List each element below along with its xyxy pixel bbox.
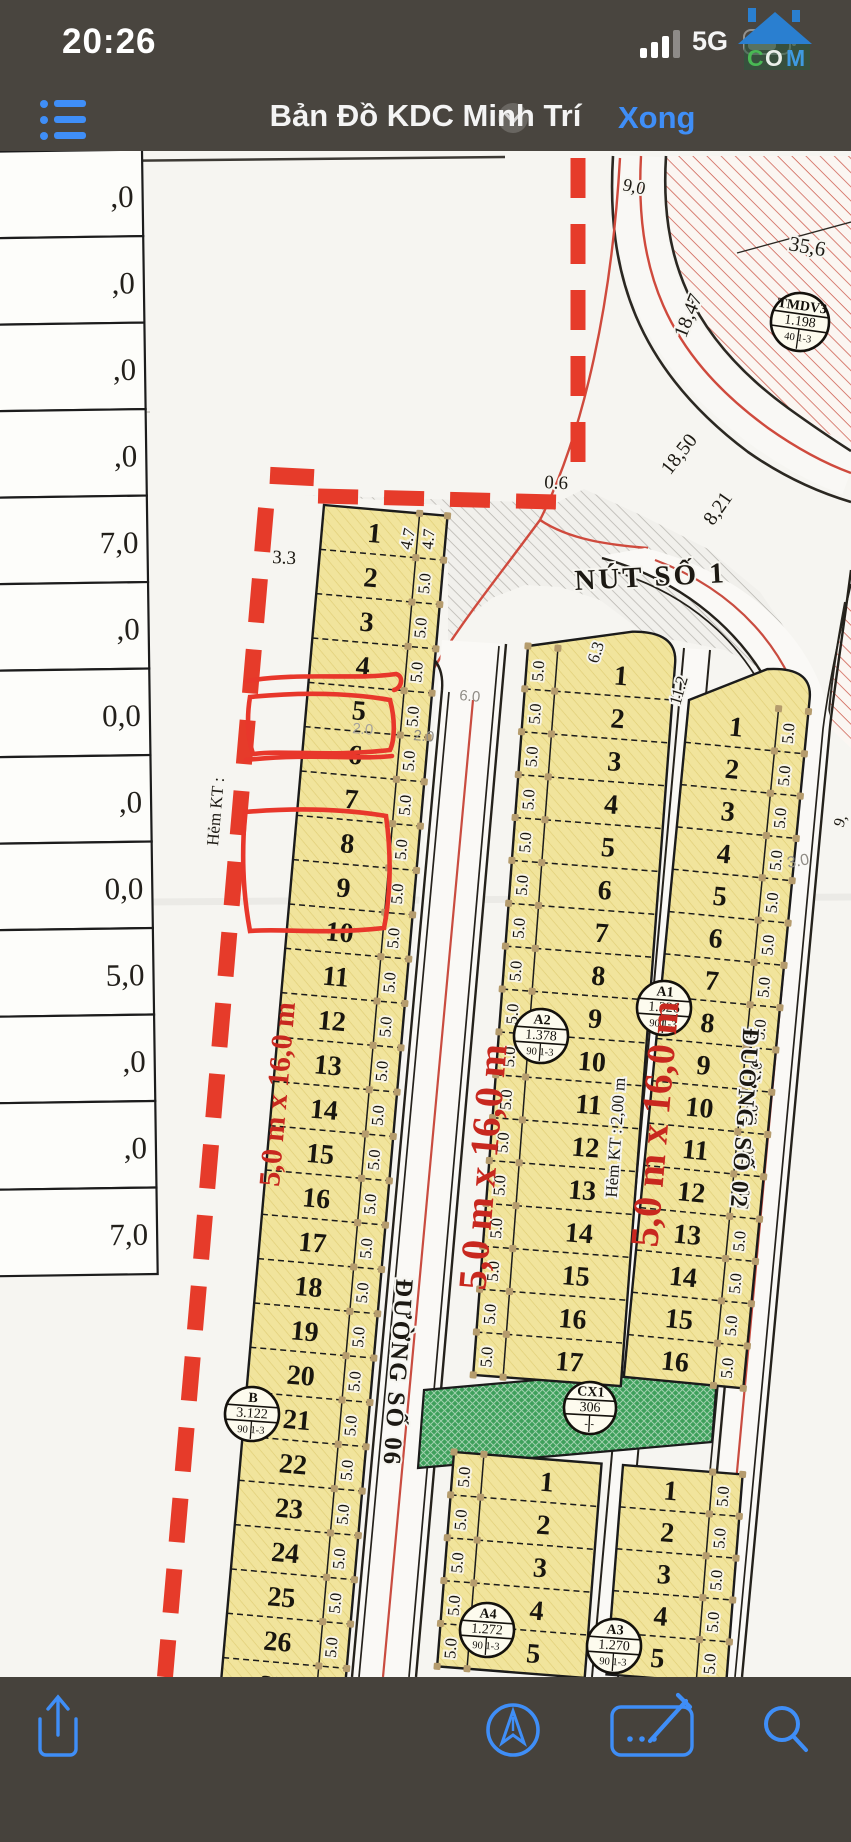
dim-6-0: 6.0 [459,687,481,706]
svg-text:5.0: 5.0 [479,1303,499,1325]
svg-text:1: 1 [613,660,629,692]
svg-text:5,0: 5,0 [106,957,145,993]
svg-text:7,0: 7,0 [99,525,138,561]
svg-text:O: O [765,45,783,71]
svg-text:5.0: 5.0 [329,1548,350,1570]
svg-text:4: 4 [603,789,619,821]
svg-text:2: 2 [724,754,741,786]
block-a4-plots[interactable]: 15.025.035.045.055.0 [433,1448,601,1677]
svg-text:8: 8 [699,1008,716,1040]
svg-text:14: 14 [564,1217,594,1250]
svg-text:5.0: 5.0 [729,1230,750,1252]
svg-text:B: B [248,1391,258,1407]
stamp-CX1: CX1306- - [563,1381,618,1436]
svg-text:1: 1 [728,711,745,743]
svg-text:9: 9 [335,873,352,905]
svg-text:A1: A1 [656,984,674,1000]
svg-text:306: 306 [579,1400,601,1416]
svg-text:A2: A2 [533,1012,551,1028]
svg-text:5.0: 5.0 [757,934,778,956]
svg-text:,0: ,0 [116,611,140,646]
svg-text:7,0: 7,0 [109,1217,148,1253]
svg-text:5.0: 5.0 [709,1527,730,1549]
svg-text:90 1-3: 90 1-3 [526,1046,554,1059]
svg-text:8: 8 [590,961,606,993]
svg-text:5.0: 5.0 [712,1485,733,1507]
svg-text:5.0: 5.0 [395,794,416,816]
svg-text:,0: ,0 [111,265,135,300]
svg-text:13: 13 [567,1174,597,1207]
watermark-logo-icon: C O M [738,8,812,71]
svg-text:5.0: 5.0 [402,705,423,727]
search-icon[interactable] [766,1708,806,1750]
svg-text:CX1: CX1 [577,1384,605,1400]
svg-text:5.0: 5.0 [703,1611,724,1633]
svg-text:,0: ,0 [114,438,138,473]
svg-text:5.0: 5.0 [774,765,795,787]
svg-text:5: 5 [600,832,616,864]
svg-text:3: 3 [656,1559,672,1591]
svg-text:12: 12 [317,1005,348,1038]
svg-text:1: 1 [366,518,383,550]
svg-text:5.0: 5.0 [348,1326,369,1348]
dim-3-3: 3.3 [272,547,297,569]
svg-text:5.0: 5.0 [778,722,799,744]
svg-text:12: 12 [676,1176,707,1210]
svg-text:5: 5 [649,1643,665,1675]
document-title: Bản Đồ KDC Minh Trí [0,98,851,134]
svg-text:10: 10 [684,1092,715,1126]
svg-text:14: 14 [668,1261,699,1295]
svg-text:0,0: 0,0 [104,871,143,907]
svg-text:5.0: 5.0 [528,660,548,682]
svg-text:17: 17 [297,1227,328,1260]
svg-text:6: 6 [707,923,724,955]
svg-text:12: 12 [570,1132,600,1165]
svg-text:5.0: 5.0 [699,1653,720,1675]
svg-text:25: 25 [266,1581,297,1614]
svg-text:15: 15 [664,1303,695,1337]
svg-text:4.7: 4.7 [418,528,439,550]
svg-text:5.0: 5.0 [379,971,400,993]
svg-text:5.0: 5.0 [340,1415,361,1437]
svg-text:21: 21 [282,1404,313,1437]
svg-text:6: 6 [597,875,613,907]
svg-text:5.0: 5.0 [505,960,525,982]
svg-text:9: 9 [695,1050,712,1082]
svg-text:11: 11 [574,1089,603,1122]
svg-text:A3: A3 [606,1622,624,1638]
svg-text:5.0: 5.0 [360,1193,381,1215]
svg-text:5.0: 5.0 [518,789,538,811]
svg-text:13: 13 [313,1049,344,1082]
svg-text:10: 10 [577,1046,607,1079]
svg-text:5.0: 5.0 [371,1060,392,1082]
svg-text:5.0: 5.0 [515,831,535,853]
svg-text:5.0: 5.0 [706,1569,727,1591]
svg-text:5.0: 5.0 [440,1637,461,1659]
svg-text:16: 16 [557,1303,587,1336]
svg-text:3: 3 [719,796,736,828]
svg-text:5.0: 5.0 [770,807,791,829]
phone-screen: 20:26 C O M [0,0,851,1842]
svg-text:9: 9 [587,1003,603,1035]
svg-text:5.0: 5.0 [521,746,541,768]
svg-text:5.0: 5.0 [725,1272,746,1294]
svg-text:5.0: 5.0 [375,1016,396,1038]
svg-text:,0: ,0 [110,179,134,214]
svg-text:5.0: 5.0 [525,703,545,725]
svg-text:1: 1 [539,1467,555,1499]
svg-text:4: 4 [715,838,732,870]
status-and-nav-bar: 20:26 C O M [0,0,851,152]
svg-text:,0: ,0 [119,784,143,819]
dim-2-0: 2.0 [413,727,435,746]
svg-text:2: 2 [610,703,626,735]
svg-text:22: 22 [278,1448,309,1481]
cadastral-map: ,0,0,0,07,0,00,0,00,05,0,0,07,0 14.725.0… [0,151,851,1677]
svg-text:1.378: 1.378 [525,1027,557,1044]
svg-text:5: 5 [525,1638,541,1670]
done-button[interactable]: Xong [618,100,696,136]
svg-text:2: 2 [535,1510,551,1542]
svg-text:17: 17 [554,1346,584,1379]
svg-text:M: M [786,45,805,71]
svg-text:13: 13 [672,1218,703,1252]
svg-text:90 1-3: 90 1-3 [237,1424,265,1437]
svg-text:90 1-3: 90 1-3 [599,1656,627,1669]
svg-text:11: 11 [321,961,350,994]
svg-text:5.0: 5.0 [410,617,431,639]
svg-text:,0: ,0 [113,352,137,387]
svg-text:27: 27 [258,1670,289,1677]
svg-text:,0: ,0 [123,1130,147,1165]
svg-text:5.0: 5.0 [367,1104,388,1126]
svg-text:4: 4 [528,1595,544,1627]
svg-text:5.0: 5.0 [406,661,427,683]
svg-text:3.122: 3.122 [236,1405,268,1422]
svg-text:5.0: 5.0 [325,1592,346,1614]
svg-text:5.0: 5.0 [398,750,419,772]
svg-text:1.272: 1.272 [471,1621,503,1638]
svg-text:15: 15 [561,1260,591,1293]
svg-text:14: 14 [309,1094,340,1127]
svg-text:5.0: 5.0 [364,1149,385,1171]
svg-text:5.0: 5.0 [352,1282,373,1304]
svg-text:16: 16 [301,1182,332,1215]
svg-text:5.0: 5.0 [765,849,786,871]
svg-text:5.0: 5.0 [512,874,532,896]
svg-text:20: 20 [285,1360,316,1393]
svg-text:90 1-3: 90 1-3 [472,1640,500,1653]
svg-text:5.0: 5.0 [761,891,782,913]
svg-text:A4: A4 [479,1606,497,1622]
left-ruler-table: ,0,0,0,07,0,00,0,00,05,0,0,07,0 [0,151,158,1276]
svg-text:5.0: 5.0 [336,1459,357,1481]
svg-text:3: 3 [606,746,622,778]
svg-text:8: 8 [339,828,356,860]
svg-text:2: 2 [362,562,379,594]
svg-text:C: C [747,45,764,71]
svg-text:5.0: 5.0 [717,1357,738,1379]
network-label: 5G [692,26,728,57]
svg-text:5.0: 5.0 [447,1552,468,1574]
svg-text:7: 7 [593,918,609,950]
svg-text:5.0: 5.0 [344,1370,365,1392]
markup-pen-icon[interactable] [488,1705,538,1755]
svg-text:18: 18 [293,1271,324,1304]
svg-text:5.0: 5.0 [391,838,412,860]
svg-text:0,0: 0,0 [102,698,141,734]
signal-icon [640,30,680,58]
svg-text:1: 1 [662,1475,678,1507]
svg-text:3: 3 [532,1552,548,1584]
svg-text:16: 16 [660,1345,691,1379]
svg-text:5.0: 5.0 [450,1509,471,1531]
svg-text:7: 7 [703,965,720,997]
dim-2-0b: 2.0 [352,720,374,739]
svg-text:- -: - - [584,1419,595,1431]
svg-text:5: 5 [711,881,728,913]
svg-text:5.0: 5.0 [454,1466,475,1488]
svg-text:5.0: 5.0 [332,1503,353,1525]
svg-text:5.0: 5.0 [444,1595,465,1617]
svg-text:5.0: 5.0 [356,1237,377,1259]
svg-text:26: 26 [262,1626,293,1659]
svg-text:5.0: 5.0 [321,1636,342,1658]
svg-text:5.0: 5.0 [508,917,528,939]
svg-text:5.0: 5.0 [753,976,774,998]
signature-field-icon[interactable] [612,1695,692,1755]
svg-text:3: 3 [358,607,375,639]
svg-text:5.0: 5.0 [476,1346,496,1368]
svg-text:2: 2 [659,1517,675,1549]
svg-text:5.0: 5.0 [414,572,435,594]
svg-text:1.270: 1.270 [598,1637,630,1654]
svg-text:,0: ,0 [122,1044,146,1079]
share-icon[interactable] [40,1697,76,1755]
dim-0-6: 0.6 [544,472,569,494]
svg-text:19: 19 [289,1315,320,1348]
bottom-toolbar: Mở trong Word [0,1677,851,1842]
svg-text:15: 15 [305,1138,336,1171]
svg-text:24: 24 [270,1537,301,1570]
svg-text:5.0: 5.0 [721,1315,742,1337]
svg-text:5.0: 5.0 [383,927,404,949]
svg-text:11: 11 [681,1134,710,1167]
svg-text:23: 23 [274,1493,305,1526]
svg-text:4: 4 [652,1601,668,1633]
